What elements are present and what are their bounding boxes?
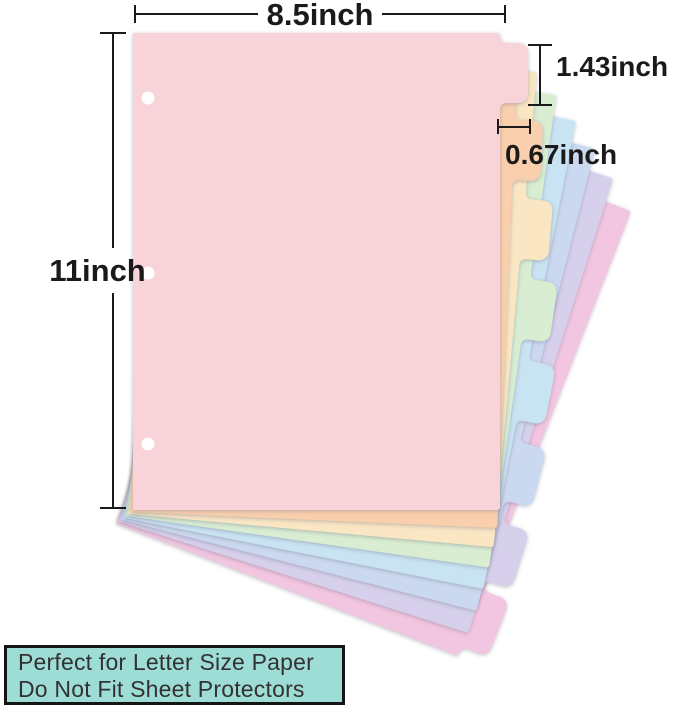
tab-height-dimension-label: 1.43inch: [556, 53, 668, 81]
dimension-tick: [529, 119, 531, 134]
dimension-width: 8.5inch: [134, 5, 506, 23]
dimension-tab-offset: [497, 119, 531, 134]
dimension-line: [382, 13, 504, 15]
product-illustration: 8.5inch 11inch 1.43inch 0.67inch Perfect…: [0, 0, 679, 711]
note-box: Perfect for Letter Size Paper Do Not Fit…: [4, 645, 345, 705]
tab-offset-dimension-label: 0.67inch: [505, 141, 617, 169]
punch-hole: [142, 92, 155, 105]
dimension-line: [136, 13, 258, 15]
height-dimension-label: 11inch: [49, 248, 146, 293]
dimension-line: [539, 46, 541, 104]
dimension-tab-height: [528, 44, 552, 106]
dimension-tick: [100, 507, 126, 509]
width-dimension-label: 8.5inch: [258, 0, 383, 30]
note-line-1: Perfect for Letter Size Paper: [18, 649, 342, 676]
dimension-tick: [504, 5, 506, 23]
note-line-2: Do Not Fit Sheet Protectors: [18, 676, 342, 703]
dimension-line: [112, 293, 114, 507]
dimension-line: [112, 34, 114, 248]
dimension-height: 11inch: [100, 32, 126, 509]
divider-sheet-pink: [133, 33, 528, 510]
dimension-tick: [528, 104, 552, 106]
punch-hole: [142, 438, 155, 451]
dimension-line: [499, 126, 529, 128]
